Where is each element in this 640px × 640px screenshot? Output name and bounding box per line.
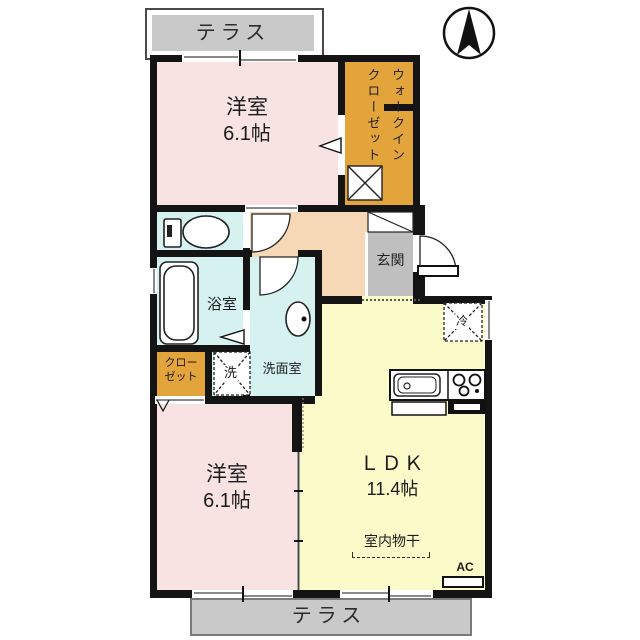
window-pane xyxy=(488,301,490,339)
door-track xyxy=(246,207,297,209)
window-pane xyxy=(194,592,242,594)
window-pane xyxy=(342,592,388,594)
door-track xyxy=(156,399,204,401)
window-pane xyxy=(389,595,431,597)
window-pane xyxy=(243,595,292,597)
window-pane xyxy=(153,269,155,293)
floor-plan: テラス 洋室 6.1帖 ウォークインクローゼット 玄関 浴室 洗面室 洗 クロー… xyxy=(0,0,640,640)
openings xyxy=(0,0,640,640)
window-pane xyxy=(240,59,296,61)
window-tick xyxy=(388,586,390,602)
window-tick xyxy=(242,586,244,602)
window-tick xyxy=(239,50,241,66)
window-pane xyxy=(184,56,238,58)
